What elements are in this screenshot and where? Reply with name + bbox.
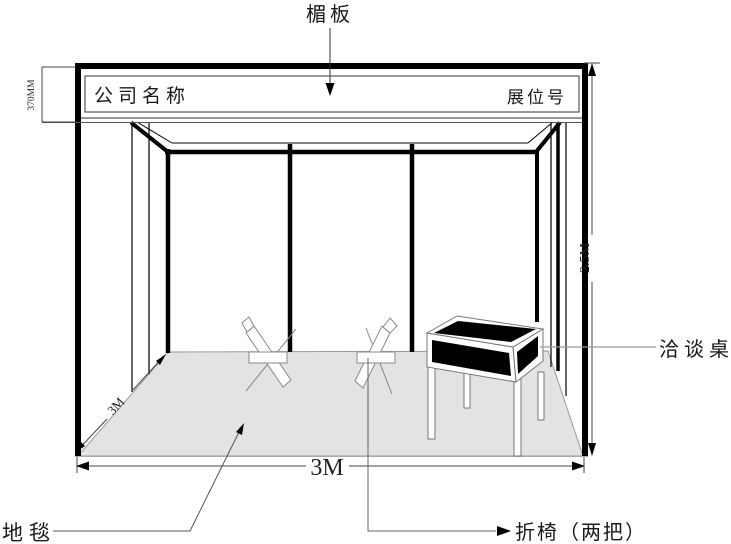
carpet-callout-label: 地毯 — [2, 521, 56, 544]
right-beam-top-edge — [528, 122, 553, 143]
booth-diagram: 公司名称 展位号 楣板 370MM 2.5M 3M — [0, 0, 731, 544]
dimension-wall-height-value: 2.5M — [578, 242, 593, 273]
chair-seat — [249, 352, 287, 363]
chairs-callout-label: 折椅（两把） — [515, 520, 647, 544]
table-callout-label: 洽谈桌 — [659, 337, 731, 361]
chair-seat — [357, 352, 395, 363]
dimension-arrow-up-icon — [588, 63, 596, 76]
table-callout: 洽谈桌 — [540, 337, 731, 361]
width-arrow-left-icon — [76, 462, 89, 471]
dimension-fascia-height: 370MM — [27, 67, 76, 122]
dimension-width: 3M — [76, 455, 585, 481]
booth-diagram-canvas: 公司名称 展位号 楣板 370MM 2.5M 3M — [0, 0, 731, 544]
chairs-arrow-icon — [497, 526, 511, 536]
dimension-arrow-down-icon — [588, 443, 596, 456]
table-leg — [514, 372, 521, 456]
table-leg — [538, 372, 544, 420]
width-arrow-right-icon — [572, 462, 585, 471]
dimension-wall-height: 2.5M — [578, 63, 600, 456]
company-name-label: 公司名称 — [94, 85, 190, 107]
fascia-callout-label: 楣板 — [306, 2, 354, 26]
booth-number-label: 展位号 — [507, 88, 567, 108]
dimension-fascia-height-value: 370MM — [27, 79, 37, 111]
table-leg — [428, 365, 435, 439]
dimension-width-value: 3M — [310, 455, 343, 481]
